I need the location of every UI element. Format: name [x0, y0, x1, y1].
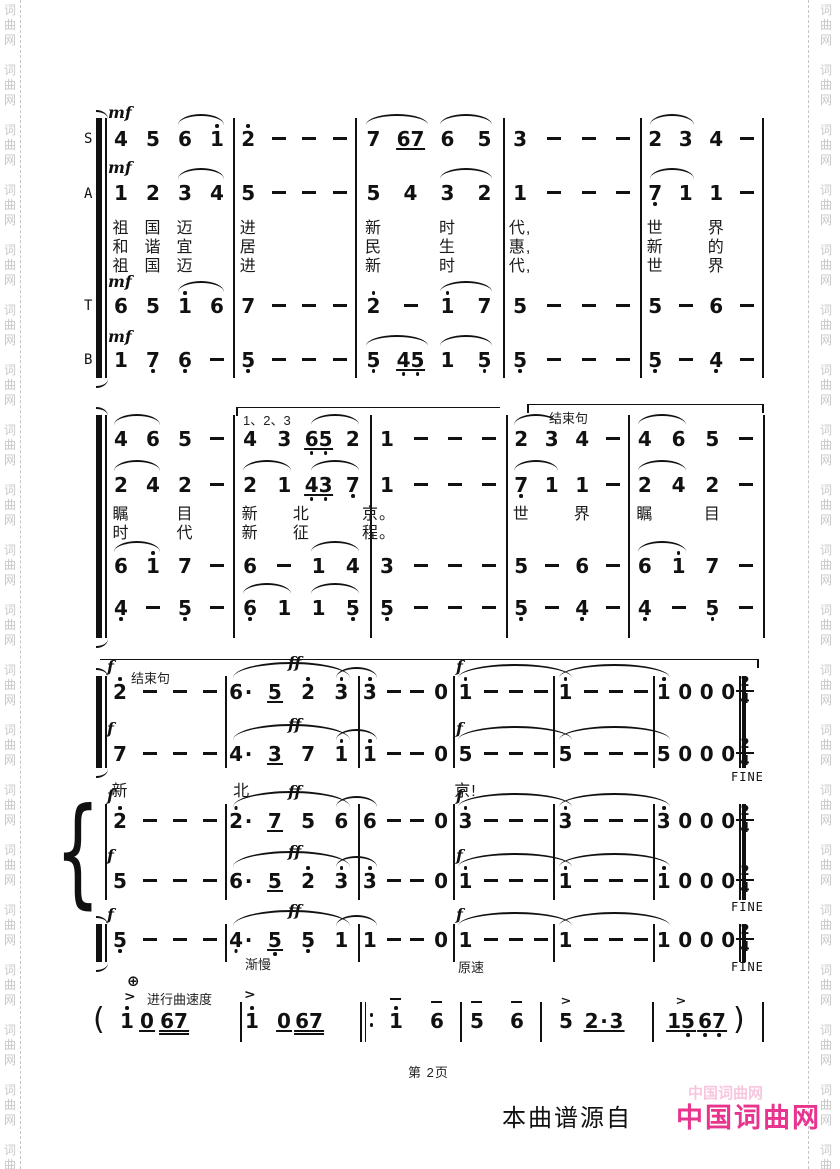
- dynamic-mark: mf: [108, 103, 132, 122]
- duration-dash: [606, 564, 620, 567]
- watermark-gap: [818, 348, 834, 363]
- watermark-char: 曲: [2, 198, 18, 213]
- watermark-char: 词: [818, 783, 834, 798]
- note-digit: 7: [648, 182, 662, 204]
- note-digit: 3: [545, 428, 559, 450]
- dynamic-mark: ff: [288, 782, 301, 801]
- barline: [233, 118, 235, 378]
- watermark-char: 词: [2, 903, 18, 918]
- note-digit: 0: [700, 743, 714, 765]
- duration-dash: [387, 690, 401, 693]
- note-token: 7: [705, 555, 719, 577]
- score-text: S: [84, 131, 92, 147]
- note-digit: 5: [319, 428, 333, 450]
- duration-dash: [277, 564, 291, 567]
- note-digit: 0: [700, 681, 714, 703]
- duration-dash: [482, 483, 496, 486]
- octave-dot-low: [351, 617, 355, 621]
- duration-dash: [584, 819, 598, 822]
- note-token: 0: [678, 743, 692, 765]
- note-token: 6: [243, 555, 257, 577]
- slur-tie: [114, 460, 160, 471]
- system-start-bar: [96, 415, 102, 638]
- duration-dash: [739, 606, 753, 609]
- duration-dash: [484, 690, 498, 693]
- note-digit: 7: [705, 555, 719, 577]
- note-digit: 1: [210, 128, 224, 150]
- note-token: 4: [638, 597, 652, 619]
- beam-line: [396, 148, 426, 150]
- note-token: 2·: [229, 810, 254, 832]
- note-digit: 2: [146, 182, 160, 204]
- lyric-syllable: 代,: [509, 252, 531, 276]
- duration-dash: [634, 819, 648, 822]
- note-digit: 7: [346, 474, 360, 496]
- watermark-char: 曲: [818, 798, 834, 813]
- note-digit: 3: [380, 555, 394, 577]
- time-signature: 24: [735, 805, 755, 835]
- note-digit: 5: [478, 349, 492, 371]
- watermark-char: 曲: [2, 558, 18, 573]
- watermark-char: 曲: [818, 438, 834, 453]
- watermark-char: 曲: [2, 1098, 18, 1113]
- barline: [553, 804, 555, 900]
- watermark-char: 曲: [2, 138, 18, 153]
- repeat-dot: [370, 1023, 374, 1027]
- note-digit: 6: [243, 555, 257, 577]
- time-sig-number: 4: [735, 941, 755, 954]
- note-digit: 0: [700, 929, 714, 951]
- watermark-gap: [818, 108, 834, 123]
- duration-dash: [582, 304, 596, 307]
- slur-tie: [650, 114, 694, 125]
- duration-dash: [616, 137, 630, 140]
- note-token: 0: [721, 929, 735, 951]
- dynamic-mark: f: [107, 657, 114, 676]
- note-token: 7: [241, 295, 255, 317]
- dynamic-mark: f: [456, 905, 463, 924]
- note-digit: 5: [681, 1010, 695, 1032]
- duration-dash: [143, 819, 157, 822]
- duration-dash: [173, 752, 187, 755]
- watermark-char: 词: [2, 243, 18, 258]
- slur-tie: [336, 796, 377, 807]
- note-token: 3: [459, 810, 473, 832]
- note-digit: 3: [277, 428, 291, 450]
- watermark-char: 网: [2, 933, 18, 948]
- dynamic-mark: f: [456, 786, 463, 805]
- time-sig-number: 2: [735, 738, 755, 751]
- beam-line: [294, 1030, 324, 1032]
- slur-tie: [458, 912, 572, 926]
- barline: [653, 924, 655, 962]
- barline: [652, 1002, 654, 1042]
- note-digit: 1: [114, 182, 128, 204]
- bracket-hook-bottom-icon: [96, 637, 108, 648]
- note-token: 0: [434, 929, 448, 951]
- duration-dash: [203, 879, 217, 882]
- note-digit: 5: [268, 870, 282, 892]
- note-token: 65: [305, 428, 333, 450]
- dynamic-mark: f: [456, 657, 463, 676]
- note-digit: 0: [434, 870, 448, 892]
- note-token: 6·: [229, 681, 254, 703]
- note-digit: 5: [241, 349, 255, 371]
- duration-dash: [739, 437, 753, 440]
- octave-dot-low: [711, 617, 715, 621]
- bracket-hook-top-icon: [96, 407, 108, 418]
- note-token: 5: [478, 128, 492, 150]
- duration-dash: [547, 191, 561, 194]
- note-token: 5: [178, 597, 192, 619]
- note-token: 2: [113, 681, 127, 703]
- note-digit: ·: [599, 1010, 610, 1032]
- duration-dash: [509, 938, 523, 941]
- note-digit: 5: [346, 597, 360, 619]
- duration-dash: [634, 752, 648, 755]
- note-token: 7: [478, 295, 492, 317]
- duration-dash: [414, 437, 428, 440]
- watermark-char: 词: [2, 423, 18, 438]
- score-text: FINE: [731, 960, 764, 974]
- barline: [460, 1002, 462, 1042]
- watermark-char: 词: [818, 903, 834, 918]
- octave-dot-low: [714, 369, 718, 373]
- barline: [105, 118, 107, 378]
- note-token: 5: [146, 295, 160, 317]
- watermark-char: 曲: [818, 978, 834, 993]
- lyric-syllable: 进: [240, 252, 257, 276]
- barline: [240, 1002, 242, 1042]
- note-token: 3: [268, 743, 282, 765]
- note-token: 5: [241, 349, 255, 371]
- slur-tie: [178, 114, 224, 125]
- note-digit: 7: [268, 810, 282, 832]
- slur-tie: [311, 583, 359, 594]
- note-digit: 7: [367, 128, 381, 150]
- watermark-gap: [2, 888, 18, 903]
- note-digit: ·: [243, 929, 254, 951]
- duration-dash: [173, 879, 187, 882]
- watermark-gap: [818, 828, 834, 843]
- watermark-gap: [818, 768, 834, 783]
- note-digit: 2: [514, 428, 528, 450]
- note-digit: 2: [638, 474, 652, 496]
- duration-dash: [448, 606, 462, 609]
- duration-dash: [616, 358, 630, 361]
- note-digit: 5: [178, 428, 192, 450]
- note-digit: 4: [709, 128, 723, 150]
- note-digit: 6: [334, 810, 348, 832]
- note-digit: 6: [397, 128, 411, 150]
- octave-dot-low: [324, 451, 328, 455]
- beam-line: [697, 1030, 727, 1032]
- note-digit: 6: [510, 1010, 524, 1032]
- note-token: 7: [648, 182, 662, 204]
- duration-dash: [609, 879, 623, 882]
- note-token: 0: [721, 870, 735, 892]
- watermark-gap: [818, 648, 834, 663]
- note-token: 0: [700, 870, 714, 892]
- note-token: 2: [243, 474, 257, 496]
- watermark-gap: [818, 408, 834, 423]
- note-token: 1: [363, 743, 377, 765]
- note-token: 0: [678, 681, 692, 703]
- octave-dot-low: [306, 949, 310, 953]
- note-token: 2: [367, 295, 381, 317]
- duration-dash: [484, 819, 498, 822]
- note-token: 5: [146, 128, 160, 150]
- watermark-char: 曲: [2, 858, 18, 873]
- note-digit: 7: [113, 743, 127, 765]
- watermark-char: 网: [818, 93, 834, 108]
- watermark-char: 曲: [2, 498, 18, 513]
- watermark-char: 网: [2, 1053, 18, 1068]
- note-digit: 6: [146, 428, 160, 450]
- note-digit: 0: [678, 810, 692, 832]
- note-digit: 1: [441, 349, 455, 371]
- note-token: 4: [114, 597, 128, 619]
- duration-dash: [606, 437, 620, 440]
- note-token: 1: [672, 555, 686, 577]
- note-token: 5: [513, 295, 527, 317]
- note-token: 3: [441, 182, 455, 204]
- note-token: 5: [513, 349, 527, 371]
- beam-line: [159, 1033, 189, 1035]
- note-digit: 6: [575, 555, 589, 577]
- note-token: 6: [363, 810, 377, 832]
- note-digit: 2: [301, 681, 315, 703]
- lyric-syllable: 新: [365, 252, 382, 276]
- watermark-gap: [2, 348, 18, 363]
- accent-mark: >: [561, 995, 572, 1009]
- note-token: 0: [434, 870, 448, 892]
- octave-dot-low: [580, 617, 584, 621]
- page-number: 第 2页: [408, 1062, 449, 1081]
- note-digit: 7: [514, 474, 528, 496]
- score-canvas: 4561276765323412345543217116516721755617…: [0, 0, 840, 1169]
- barline: [640, 118, 642, 378]
- slur-tie: [336, 667, 377, 678]
- duration-dash: [534, 690, 548, 693]
- barline: [540, 1002, 542, 1042]
- duration-dash: [333, 191, 347, 194]
- note-digit: 0: [721, 929, 735, 951]
- note-digit: 5: [705, 428, 719, 450]
- watermark-gap: [818, 288, 834, 303]
- note-digit: 5: [478, 128, 492, 150]
- note-token: 1: [114, 349, 128, 371]
- note-token: 4: [672, 474, 686, 496]
- slur-tie: [336, 856, 377, 867]
- slur-tie: [440, 335, 492, 346]
- note-digit: 4: [575, 428, 589, 450]
- barline: [225, 804, 227, 900]
- watermark-char: 词: [2, 1083, 18, 1098]
- note-token: 3: [363, 870, 377, 892]
- lyric-syllable: 程。: [362, 519, 396, 543]
- slur-tie: [178, 281, 224, 292]
- system-start-bar: [96, 118, 102, 378]
- note-digit: 1: [459, 870, 473, 892]
- barline: [453, 924, 455, 962]
- octave-dot-high: [118, 677, 122, 681]
- watermark-gap: [2, 948, 18, 963]
- note-token: 5: [459, 743, 473, 765]
- octave-dot-low: [402, 372, 406, 376]
- note-digit: 2: [301, 870, 315, 892]
- note-token: 5: [478, 349, 492, 371]
- watermark-char: 曲: [2, 1158, 18, 1169]
- watermark-char: 曲: [2, 798, 18, 813]
- footer-site-link[interactable]: 中国词曲网: [676, 1096, 821, 1135]
- note-token: 1: [277, 474, 291, 496]
- note-token: 2: [638, 474, 652, 496]
- watermark-char: 词: [818, 663, 834, 678]
- note-digit: 0: [434, 743, 448, 765]
- note-token: 2: [478, 182, 492, 204]
- note-token: 6: [441, 128, 455, 150]
- note-digit: 0: [678, 929, 692, 951]
- watermark-gap: [2, 108, 18, 123]
- watermark-char: 词: [2, 3, 18, 18]
- watermark-char: 词: [818, 1143, 834, 1158]
- octave-dot-low: [385, 617, 389, 621]
- note-token: 5: [113, 929, 127, 951]
- note-token: 5: [367, 349, 381, 371]
- duration-dash: [387, 879, 401, 882]
- duration-dash: [272, 304, 286, 307]
- slur-tie: [650, 168, 694, 179]
- note-digit: 4: [346, 555, 360, 577]
- note-digit: 5: [380, 597, 394, 619]
- note-digit: 1: [312, 597, 326, 619]
- note-token: 1: [657, 681, 671, 703]
- note-token: 1: [657, 870, 671, 892]
- octave-dot-low: [310, 497, 314, 501]
- lyric-syllable: 新: [242, 519, 259, 543]
- watermark-char: 词: [2, 63, 18, 78]
- score-text: FINE: [731, 900, 764, 914]
- watermark-char: 曲: [2, 258, 18, 273]
- slur-tie: [336, 729, 377, 740]
- note-digit: 4: [243, 428, 257, 450]
- note-digit: 4: [305, 474, 319, 496]
- note-digit: 5: [178, 597, 192, 619]
- note-digit: 5: [470, 1010, 484, 1032]
- duration-dash: [609, 690, 623, 693]
- note-digit: 6: [160, 1010, 174, 1032]
- note-digit: 3: [513, 128, 527, 150]
- note-digit: 4: [210, 182, 224, 204]
- duration-dash: [210, 564, 224, 567]
- note-digit: 1: [334, 743, 348, 765]
- note-token: 1: [559, 870, 573, 892]
- dynamic-mark: ff: [288, 715, 301, 734]
- duration-dash: [302, 358, 316, 361]
- duration-dash: [672, 606, 686, 609]
- duration-dash: [606, 606, 620, 609]
- watermark-char: 词: [818, 3, 834, 18]
- note-digit: 0: [721, 870, 735, 892]
- watermark-char: 词: [2, 1143, 18, 1158]
- barline: [225, 924, 227, 962]
- note-token: 4: [243, 428, 257, 450]
- note-token: 0: [434, 743, 448, 765]
- duration-dash: [410, 819, 424, 822]
- note-token: 3: [178, 182, 192, 204]
- beam-line: [267, 701, 283, 703]
- barline: [225, 676, 227, 768]
- watermark-char: 词: [2, 483, 18, 498]
- note-token: 2: [114, 474, 128, 496]
- duration-dash: [387, 819, 401, 822]
- watermark-char: 网: [818, 153, 834, 168]
- duration-dash: [203, 938, 217, 941]
- note-token: 5: [559, 743, 573, 765]
- note-token: 6: [334, 810, 348, 832]
- note-token: 2: [146, 182, 160, 204]
- note-digit: 1: [459, 929, 473, 951]
- barline: [358, 924, 360, 962]
- note-token: 5: [301, 810, 315, 832]
- note-digit: 0: [434, 681, 448, 703]
- score-text: ): [733, 1002, 745, 1037]
- lyric-syllable: 代: [176, 519, 193, 543]
- note-digit: 1: [657, 681, 671, 703]
- note-token: 7: [367, 128, 381, 150]
- watermark-char: 网: [818, 393, 834, 408]
- note-token: 2: [346, 428, 360, 450]
- octave-dot-low: [119, 617, 123, 621]
- note-digit: 5: [513, 295, 527, 317]
- duration-dash: [414, 606, 428, 609]
- bracket-tick: [762, 404, 764, 413]
- note-digit: 5: [268, 681, 282, 703]
- note-token: 2: [113, 810, 127, 832]
- duration-dash: [739, 564, 753, 567]
- score-text: FINE: [731, 770, 764, 784]
- duration-dash: [210, 358, 224, 361]
- note-token: 6: [575, 555, 589, 577]
- note-digit: 0: [140, 1010, 154, 1032]
- octave-dot-low: [717, 1033, 721, 1037]
- dynamic-mark: f: [456, 719, 463, 738]
- watermark-gap: [2, 48, 18, 63]
- note-token: 6: [638, 555, 652, 577]
- beam-line: [159, 1030, 189, 1032]
- tenuto-mark: [390, 998, 401, 1000]
- watermark-char: 词: [2, 663, 18, 678]
- watermark-char: 曲: [2, 978, 18, 993]
- watermark-gap: [818, 1068, 834, 1083]
- duration-dash: [484, 938, 498, 941]
- note-digit: 1: [363, 929, 377, 951]
- watermark-char: 网: [2, 633, 18, 648]
- slur-tie: [440, 114, 492, 125]
- note-digit: 6: [229, 870, 243, 892]
- watermark-char: 曲: [818, 918, 834, 933]
- slur-tie: [458, 726, 572, 740]
- note-token: 1: [334, 929, 348, 951]
- octave-dot-low: [310, 451, 314, 455]
- note-token: 67: [160, 1010, 188, 1032]
- note-token: 3: [334, 681, 348, 703]
- note-token: 6: [243, 597, 257, 619]
- note-digit: 5: [367, 349, 381, 371]
- note-token: 6: [430, 1010, 444, 1032]
- note-digit: 1: [657, 929, 671, 951]
